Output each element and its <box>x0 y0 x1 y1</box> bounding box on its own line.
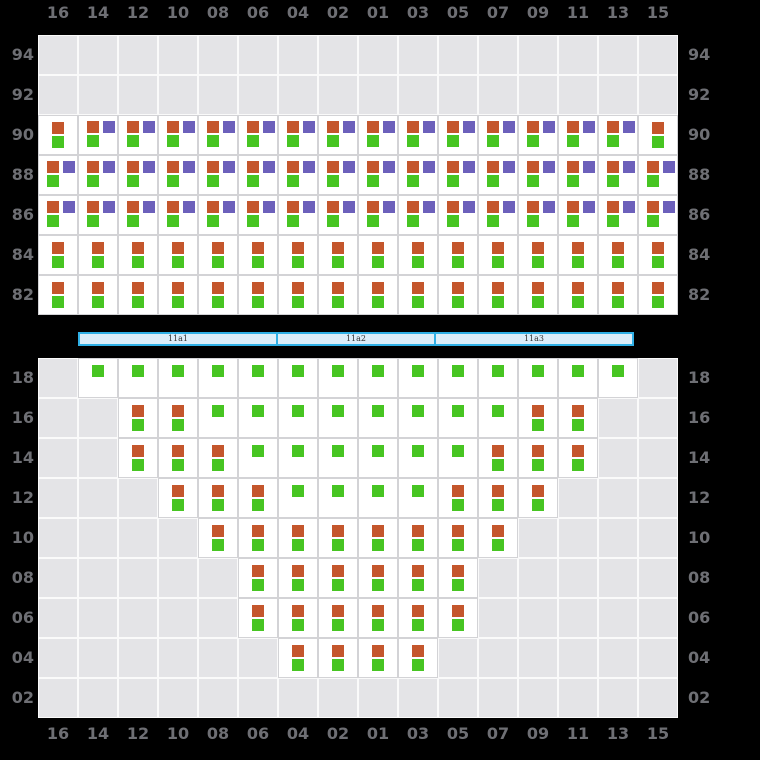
cargo-square-green <box>647 175 659 187</box>
empty-slot-cell <box>318 678 358 718</box>
occupied-slot-cell <box>158 275 198 315</box>
cargo-square-green <box>452 296 464 308</box>
cargo-square-green <box>452 256 464 268</box>
empty-slot-cell <box>558 35 598 75</box>
cargo-square-orange <box>212 485 224 497</box>
cargo-square-orange <box>372 645 384 657</box>
cargo-square-orange <box>327 121 339 133</box>
deck-tier-label: 90 <box>688 115 722 155</box>
occupied-slot-cell <box>558 115 598 155</box>
cargo-square-orange <box>532 485 544 497</box>
empty-slot-cell <box>158 678 198 718</box>
cargo-square-green <box>212 296 224 308</box>
cargo-square-green <box>172 365 184 377</box>
empty-slot-cell <box>278 35 318 75</box>
cargo-square-orange <box>487 161 499 173</box>
cargo-square-green <box>447 135 459 147</box>
cargo-square-orange <box>452 485 464 497</box>
cargo-square-green <box>292 539 304 551</box>
cargo-square-orange <box>252 605 264 617</box>
empty-slot-cell <box>518 598 558 638</box>
empty-slot-cell <box>518 678 558 718</box>
cargo-square-green <box>372 619 384 631</box>
occupied-slot-cell <box>438 478 478 518</box>
empty-slot-cell <box>598 438 638 478</box>
cargo-square-purple <box>183 201 195 213</box>
column-label: 10 <box>158 0 198 26</box>
cargo-square-orange <box>247 121 259 133</box>
cargo-square-orange <box>207 161 219 173</box>
cargo-square-orange <box>567 121 579 133</box>
occupied-slot-cell <box>478 155 518 195</box>
cargo-square-purple <box>383 121 395 133</box>
cargo-square-purple <box>263 121 275 133</box>
cargo-square-green <box>287 175 299 187</box>
cargo-square-orange <box>332 565 344 577</box>
deck-tier-labels-left: 94929088868482 <box>0 35 34 315</box>
column-label: 13 <box>598 721 638 747</box>
cargo-square-purple <box>623 161 635 173</box>
occupied-slot-cell <box>158 478 198 518</box>
cargo-square-green <box>572 365 584 377</box>
cargo-square-orange <box>367 201 379 213</box>
cargo-square-green <box>247 175 259 187</box>
cargo-square-orange <box>492 525 504 537</box>
column-label: 15 <box>638 721 678 747</box>
occupied-slot-cell <box>158 235 198 275</box>
occupied-slot-cell <box>398 478 438 518</box>
empty-slot-cell <box>598 598 638 638</box>
occupied-slot-cell <box>638 115 678 155</box>
empty-slot-cell <box>558 638 598 678</box>
empty-slot-cell <box>598 398 638 438</box>
cargo-square-orange <box>532 242 544 254</box>
cargo-square-green <box>292 445 304 457</box>
occupied-slot-cell <box>118 358 158 398</box>
empty-slot-cell <box>158 558 198 598</box>
cargo-square-orange <box>447 201 459 213</box>
cargo-square-orange <box>407 121 419 133</box>
cargo-square-orange <box>527 201 539 213</box>
column-label: 01 <box>358 721 398 747</box>
cargo-square-green <box>527 135 539 147</box>
cargo-square-purple <box>343 121 355 133</box>
cargo-square-orange <box>527 121 539 133</box>
occupied-slot-cell <box>198 235 238 275</box>
occupied-slot-cell <box>358 195 398 235</box>
occupied-slot-cell <box>358 358 398 398</box>
cargo-square-green <box>332 659 344 671</box>
cargo-square-purple <box>63 201 75 213</box>
cargo-square-green <box>372 365 384 377</box>
occupied-slot-cell <box>198 195 238 235</box>
cargo-square-orange <box>367 121 379 133</box>
empty-slot-cell <box>398 35 438 75</box>
occupied-slot-cell <box>278 195 318 235</box>
cargo-square-green <box>132 419 144 431</box>
occupied-slot-cell <box>278 438 318 478</box>
empty-slot-cell <box>318 75 358 115</box>
occupied-slot-cell <box>558 438 598 478</box>
column-label: 04 <box>278 0 318 26</box>
column-label: 03 <box>398 721 438 747</box>
occupied-slot-cell <box>438 438 478 478</box>
occupied-slot-cell <box>558 275 598 315</box>
occupied-slot-cell <box>558 358 598 398</box>
empty-slot-cell <box>518 75 558 115</box>
occupied-slot-cell <box>278 398 318 438</box>
cargo-square-orange <box>207 201 219 213</box>
cargo-square-green <box>572 256 584 268</box>
cargo-square-orange <box>572 405 584 417</box>
cargo-square-green <box>47 175 59 187</box>
cargo-square-orange <box>212 282 224 294</box>
cargo-square-green <box>412 539 424 551</box>
hold-tier-label: 06 <box>0 598 34 638</box>
occupied-slot-cell <box>518 398 558 438</box>
occupied-slot-cell <box>238 275 278 315</box>
cargo-square-green <box>372 256 384 268</box>
cargo-square-orange <box>252 525 264 537</box>
empty-slot-cell <box>38 638 78 678</box>
occupied-slot-cell <box>278 598 318 638</box>
cargo-square-purple <box>503 201 515 213</box>
empty-slot-cell <box>78 478 118 518</box>
occupied-slot-cell <box>318 478 358 518</box>
cargo-square-green <box>607 215 619 227</box>
cargo-square-green <box>372 539 384 551</box>
cargo-square-orange <box>412 605 424 617</box>
cargo-square-green <box>332 619 344 631</box>
cargo-square-orange <box>167 201 179 213</box>
cargo-square-purple <box>263 161 275 173</box>
occupied-slot-cell <box>638 275 678 315</box>
empty-slot-cell <box>38 518 78 558</box>
empty-slot-cell <box>478 35 518 75</box>
empty-slot-cell <box>638 438 678 478</box>
cargo-square-green <box>412 619 424 631</box>
cargo-square-green <box>207 135 219 147</box>
occupied-slot-cell <box>318 638 358 678</box>
cargo-square-orange <box>412 525 424 537</box>
empty-slot-cell <box>198 35 238 75</box>
cargo-square-orange <box>212 242 224 254</box>
cargo-square-purple <box>623 201 635 213</box>
occupied-slot-cell <box>518 478 558 518</box>
cargo-square-green <box>372 405 384 417</box>
cargo-square-orange <box>372 242 384 254</box>
occupied-slot-cell <box>478 275 518 315</box>
cargo-square-green <box>52 136 64 148</box>
empty-slot-cell <box>438 35 478 75</box>
cargo-square-orange <box>412 282 424 294</box>
empty-slot-cell <box>78 518 118 558</box>
empty-slot-cell <box>638 678 678 718</box>
cargo-square-orange <box>372 605 384 617</box>
occupied-slot-cell <box>118 398 158 438</box>
occupied-slot-cell <box>318 558 358 598</box>
empty-slot-cell <box>38 558 78 598</box>
occupied-slot-cell <box>598 358 638 398</box>
cargo-square-purple <box>143 161 155 173</box>
cargo-square-orange <box>47 161 59 173</box>
cargo-square-orange <box>92 242 104 254</box>
occupied-slot-cell <box>158 398 198 438</box>
cargo-square-green <box>247 135 259 147</box>
empty-slot-cell <box>118 638 158 678</box>
cargo-square-orange <box>132 282 144 294</box>
occupied-slot-cell <box>318 155 358 195</box>
cargo-square-orange <box>492 485 504 497</box>
occupied-slot-cell <box>238 438 278 478</box>
cargo-square-purple <box>183 161 195 173</box>
cargo-square-orange <box>292 565 304 577</box>
cargo-square-purple <box>543 121 555 133</box>
cargo-square-orange <box>492 282 504 294</box>
cargo-square-purple <box>423 121 435 133</box>
occupied-slot-cell <box>478 235 518 275</box>
hatch-cover-segment-3: 11a3 <box>434 332 634 346</box>
occupied-slot-cell <box>238 115 278 155</box>
hold-section-grid <box>38 358 678 718</box>
cargo-square-purple <box>503 161 515 173</box>
empty-slot-cell <box>278 75 318 115</box>
occupied-slot-cell <box>598 115 638 155</box>
occupied-slot-cell <box>118 275 158 315</box>
empty-slot-cell <box>638 75 678 115</box>
occupied-slot-cell <box>358 558 398 598</box>
occupied-slot-cell <box>438 155 478 195</box>
empty-slot-cell <box>358 75 398 115</box>
empty-slot-cell <box>598 518 638 558</box>
deck-tier-label: 86 <box>688 195 722 235</box>
column-label: 03 <box>398 0 438 26</box>
occupied-slot-cell <box>238 478 278 518</box>
empty-slot-cell <box>638 558 678 598</box>
occupied-slot-cell <box>318 518 358 558</box>
cargo-square-green <box>612 296 624 308</box>
cargo-square-green <box>607 135 619 147</box>
cargo-square-green <box>172 459 184 471</box>
cargo-square-purple <box>583 201 595 213</box>
cargo-square-green <box>612 365 624 377</box>
occupied-slot-cell <box>398 398 438 438</box>
cargo-square-green <box>492 459 504 471</box>
empty-slot-cell <box>238 638 278 678</box>
cargo-square-purple <box>583 161 595 173</box>
empty-slot-cell <box>478 598 518 638</box>
occupied-slot-cell <box>598 235 638 275</box>
cargo-square-orange <box>447 161 459 173</box>
occupied-slot-cell <box>158 155 198 195</box>
cargo-square-orange <box>412 565 424 577</box>
cargo-square-purple <box>263 201 275 213</box>
occupied-slot-cell <box>438 558 478 598</box>
occupied-slot-cell <box>198 518 238 558</box>
empty-slot-cell <box>518 518 558 558</box>
occupied-slot-cell <box>358 115 398 155</box>
cargo-square-green <box>252 445 264 457</box>
column-label: 10 <box>158 721 198 747</box>
column-label: 14 <box>78 721 118 747</box>
cargo-square-orange <box>292 645 304 657</box>
occupied-slot-cell <box>38 155 78 195</box>
cargo-square-green <box>607 175 619 187</box>
cargo-square-orange <box>487 121 499 133</box>
cargo-square-green <box>212 256 224 268</box>
cargo-square-purple <box>223 161 235 173</box>
occupied-slot-cell <box>198 438 238 478</box>
occupied-slot-cell <box>638 155 678 195</box>
cargo-square-orange <box>52 282 64 294</box>
occupied-slot-cell <box>238 598 278 638</box>
occupied-slot-cell <box>438 358 478 398</box>
cargo-square-green <box>372 659 384 671</box>
cargo-square-green <box>412 365 424 377</box>
cargo-square-green <box>292 485 304 497</box>
occupied-slot-cell <box>478 478 518 518</box>
occupied-slot-cell <box>78 275 118 315</box>
occupied-slot-cell <box>318 598 358 638</box>
cargo-square-green <box>452 619 464 631</box>
cargo-square-green <box>372 445 384 457</box>
cargo-square-green <box>532 296 544 308</box>
occupied-slot-cell <box>398 438 438 478</box>
empty-slot-cell <box>318 35 358 75</box>
occupied-slot-cell <box>78 235 118 275</box>
cargo-square-green <box>167 175 179 187</box>
occupied-slot-cell <box>398 518 438 558</box>
cargo-square-green <box>132 365 144 377</box>
deck-tier-labels-right: 94929088868482 <box>688 35 722 315</box>
cargo-square-purple <box>303 121 315 133</box>
cargo-square-green <box>52 256 64 268</box>
occupied-slot-cell <box>598 275 638 315</box>
cargo-square-orange <box>327 161 339 173</box>
occupied-slot-cell <box>238 358 278 398</box>
occupied-slot-cell <box>158 195 198 235</box>
cargo-square-orange <box>172 485 184 497</box>
occupied-slot-cell <box>398 235 438 275</box>
cargo-square-orange <box>487 201 499 213</box>
cargo-square-orange <box>292 605 304 617</box>
cargo-square-orange <box>612 242 624 254</box>
column-label: 09 <box>518 721 558 747</box>
cargo-square-green <box>447 175 459 187</box>
cargo-square-orange <box>452 525 464 537</box>
occupied-slot-cell <box>238 155 278 195</box>
cargo-square-orange <box>212 525 224 537</box>
empty-slot-cell <box>38 35 78 75</box>
cargo-square-purple <box>223 121 235 133</box>
occupied-slot-cell <box>518 275 558 315</box>
cargo-square-orange <box>172 405 184 417</box>
deck-tier-label: 88 <box>688 155 722 195</box>
cargo-square-orange <box>532 282 544 294</box>
occupied-slot-cell <box>478 438 518 478</box>
hold-tier-label: 18 <box>0 358 34 398</box>
cargo-square-orange <box>247 201 259 213</box>
occupied-slot-cell <box>398 638 438 678</box>
cargo-square-orange <box>572 242 584 254</box>
cargo-square-orange <box>172 242 184 254</box>
empty-slot-cell <box>118 35 158 75</box>
empty-slot-cell <box>598 678 638 718</box>
occupied-slot-cell <box>478 115 518 155</box>
occupied-slot-cell <box>38 195 78 235</box>
column-label: 11 <box>558 721 598 747</box>
empty-slot-cell <box>78 598 118 638</box>
empty-slot-cell <box>598 75 638 115</box>
occupied-slot-cell <box>78 195 118 235</box>
occupied-slot-cell <box>358 598 398 638</box>
empty-slot-cell <box>438 638 478 678</box>
column-label: 07 <box>478 0 518 26</box>
empty-slot-cell <box>118 478 158 518</box>
occupied-slot-cell <box>478 398 518 438</box>
deck-tier-label: 86 <box>0 195 34 235</box>
cargo-square-green <box>327 135 339 147</box>
column-label: 08 <box>198 721 238 747</box>
occupied-slot-cell <box>518 115 558 155</box>
empty-slot-cell <box>78 638 118 678</box>
cargo-square-green <box>572 459 584 471</box>
hatch-cover-segment-2: 11a2 <box>276 332 436 346</box>
cargo-square-orange <box>412 242 424 254</box>
occupied-slot-cell <box>78 155 118 195</box>
empty-slot-cell <box>38 678 78 718</box>
empty-slot-cell <box>558 678 598 718</box>
cargo-square-green <box>532 419 544 431</box>
occupied-slot-cell <box>478 358 518 398</box>
cargo-square-orange <box>332 605 344 617</box>
empty-slot-cell <box>238 35 278 75</box>
hold-tier-label: 14 <box>688 438 722 478</box>
cargo-square-orange <box>607 121 619 133</box>
cargo-square-green <box>252 579 264 591</box>
cargo-square-orange <box>292 242 304 254</box>
cargo-square-green <box>212 539 224 551</box>
cargo-square-green <box>167 135 179 147</box>
empty-slot-cell <box>38 598 78 638</box>
occupied-slot-cell <box>398 275 438 315</box>
column-label: 06 <box>238 0 278 26</box>
empty-slot-cell <box>118 518 158 558</box>
occupied-slot-cell <box>518 155 558 195</box>
cargo-square-green <box>412 296 424 308</box>
hold-column-labels: 16141210080604020103050709111315 <box>38 721 678 747</box>
cargo-square-orange <box>492 242 504 254</box>
cargo-square-purple <box>663 161 675 173</box>
cargo-square-green <box>452 539 464 551</box>
cargo-square-green <box>332 445 344 457</box>
occupied-slot-cell <box>358 518 398 558</box>
empty-slot-cell <box>398 678 438 718</box>
empty-slot-cell <box>78 35 118 75</box>
occupied-slot-cell <box>358 478 398 518</box>
cargo-square-green <box>327 175 339 187</box>
cargo-square-orange <box>87 201 99 213</box>
cargo-square-orange <box>332 282 344 294</box>
cargo-square-green <box>132 256 144 268</box>
occupied-slot-cell <box>518 235 558 275</box>
cargo-square-green <box>332 579 344 591</box>
occupied-slot-cell <box>638 195 678 235</box>
cargo-square-green <box>212 459 224 471</box>
cargo-square-green <box>532 499 544 511</box>
cargo-square-orange <box>132 445 144 457</box>
cargo-square-green <box>127 215 139 227</box>
